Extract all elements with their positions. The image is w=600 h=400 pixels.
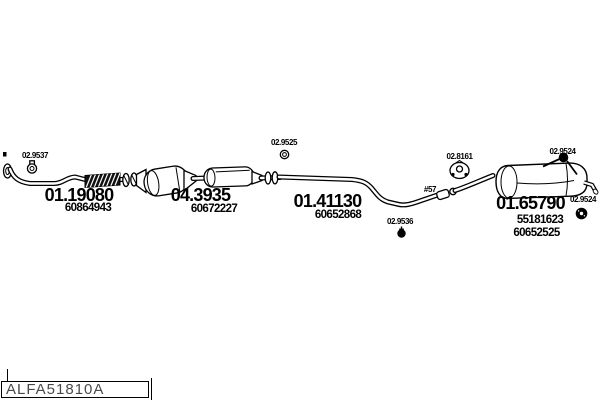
callout-center-mount[interactable]: 02.9536 <box>387 218 413 226</box>
callout-center-ring[interactable]: 02.9525 <box>271 139 297 147</box>
callout-front-clamp[interactable]: 02.9537 <box>22 152 48 160</box>
callout-mid-hanger[interactable]: 02.8161 <box>446 153 472 161</box>
callout-rear-hanger-side[interactable]: 02.9524 <box>570 196 596 204</box>
rubber-hanger-icon <box>450 161 469 179</box>
ref-marker-57: #57 <box>424 186 436 194</box>
footer-tick-mark <box>7 369 9 381</box>
front-clamp-icon <box>27 161 36 173</box>
exhaust-parts-diagram: 02.9537 02.9525 02.9536 02.8161 02.9524 … <box>0 0 600 400</box>
gasket-ring-icon <box>280 150 288 158</box>
rubber-grommet-icon <box>576 208 588 220</box>
footer-divider-line <box>151 378 153 400</box>
part-code-catalytic-converter[interactable]: 04.3935 <box>171 186 230 204</box>
part-oe-front-pipe: 60864943 <box>65 203 111 215</box>
part-code-center-pipe[interactable]: 01.41130 <box>294 192 362 210</box>
rubber-mount-icon <box>397 227 405 238</box>
pipe-coupler-rings <box>123 173 137 187</box>
drawing-code: ALFA51810A <box>2 382 148 397</box>
part-oe1-rear-silencer: 55181623 <box>517 215 563 227</box>
part-oe-center-pipe: 60652868 <box>315 210 361 222</box>
part-oe-catalytic-converter: 60672227 <box>191 204 237 216</box>
part-oe2-rear-silencer: 60652525 <box>513 228 559 240</box>
drawing-code-box: ALFA51810A <box>1 381 149 398</box>
callout-rear-hanger-top[interactable]: 02.9524 <box>549 148 575 156</box>
part-code-rear-silencer[interactable]: 01.65790 <box>496 194 565 212</box>
